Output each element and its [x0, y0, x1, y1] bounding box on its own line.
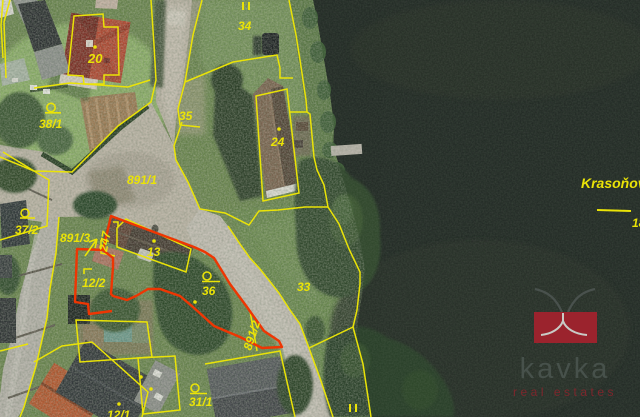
svg-text:34: 34 [238, 19, 252, 33]
svg-text:18: 18 [632, 216, 640, 230]
svg-text:31/1: 31/1 [189, 395, 213, 409]
svg-text:kavka: kavka [520, 353, 611, 385]
svg-text:38/1: 38/1 [39, 117, 63, 131]
svg-text:33: 33 [297, 280, 311, 294]
svg-text:37/2: 37/2 [15, 223, 39, 237]
svg-text:891/1: 891/1 [127, 173, 157, 187]
svg-text:36: 36 [202, 284, 216, 298]
svg-text:real estates: real estates [513, 385, 617, 399]
svg-text:20: 20 [87, 51, 103, 66]
svg-text:Krasoňovský: Krasoňovský [581, 175, 640, 191]
svg-text:12/2: 12/2 [82, 276, 106, 290]
svg-text:24: 24 [270, 135, 285, 149]
svg-text:891/3: 891/3 [60, 231, 90, 245]
svg-text:13: 13 [147, 245, 161, 259]
svg-text:35: 35 [179, 109, 193, 123]
svg-text:12/1: 12/1 [107, 408, 131, 417]
